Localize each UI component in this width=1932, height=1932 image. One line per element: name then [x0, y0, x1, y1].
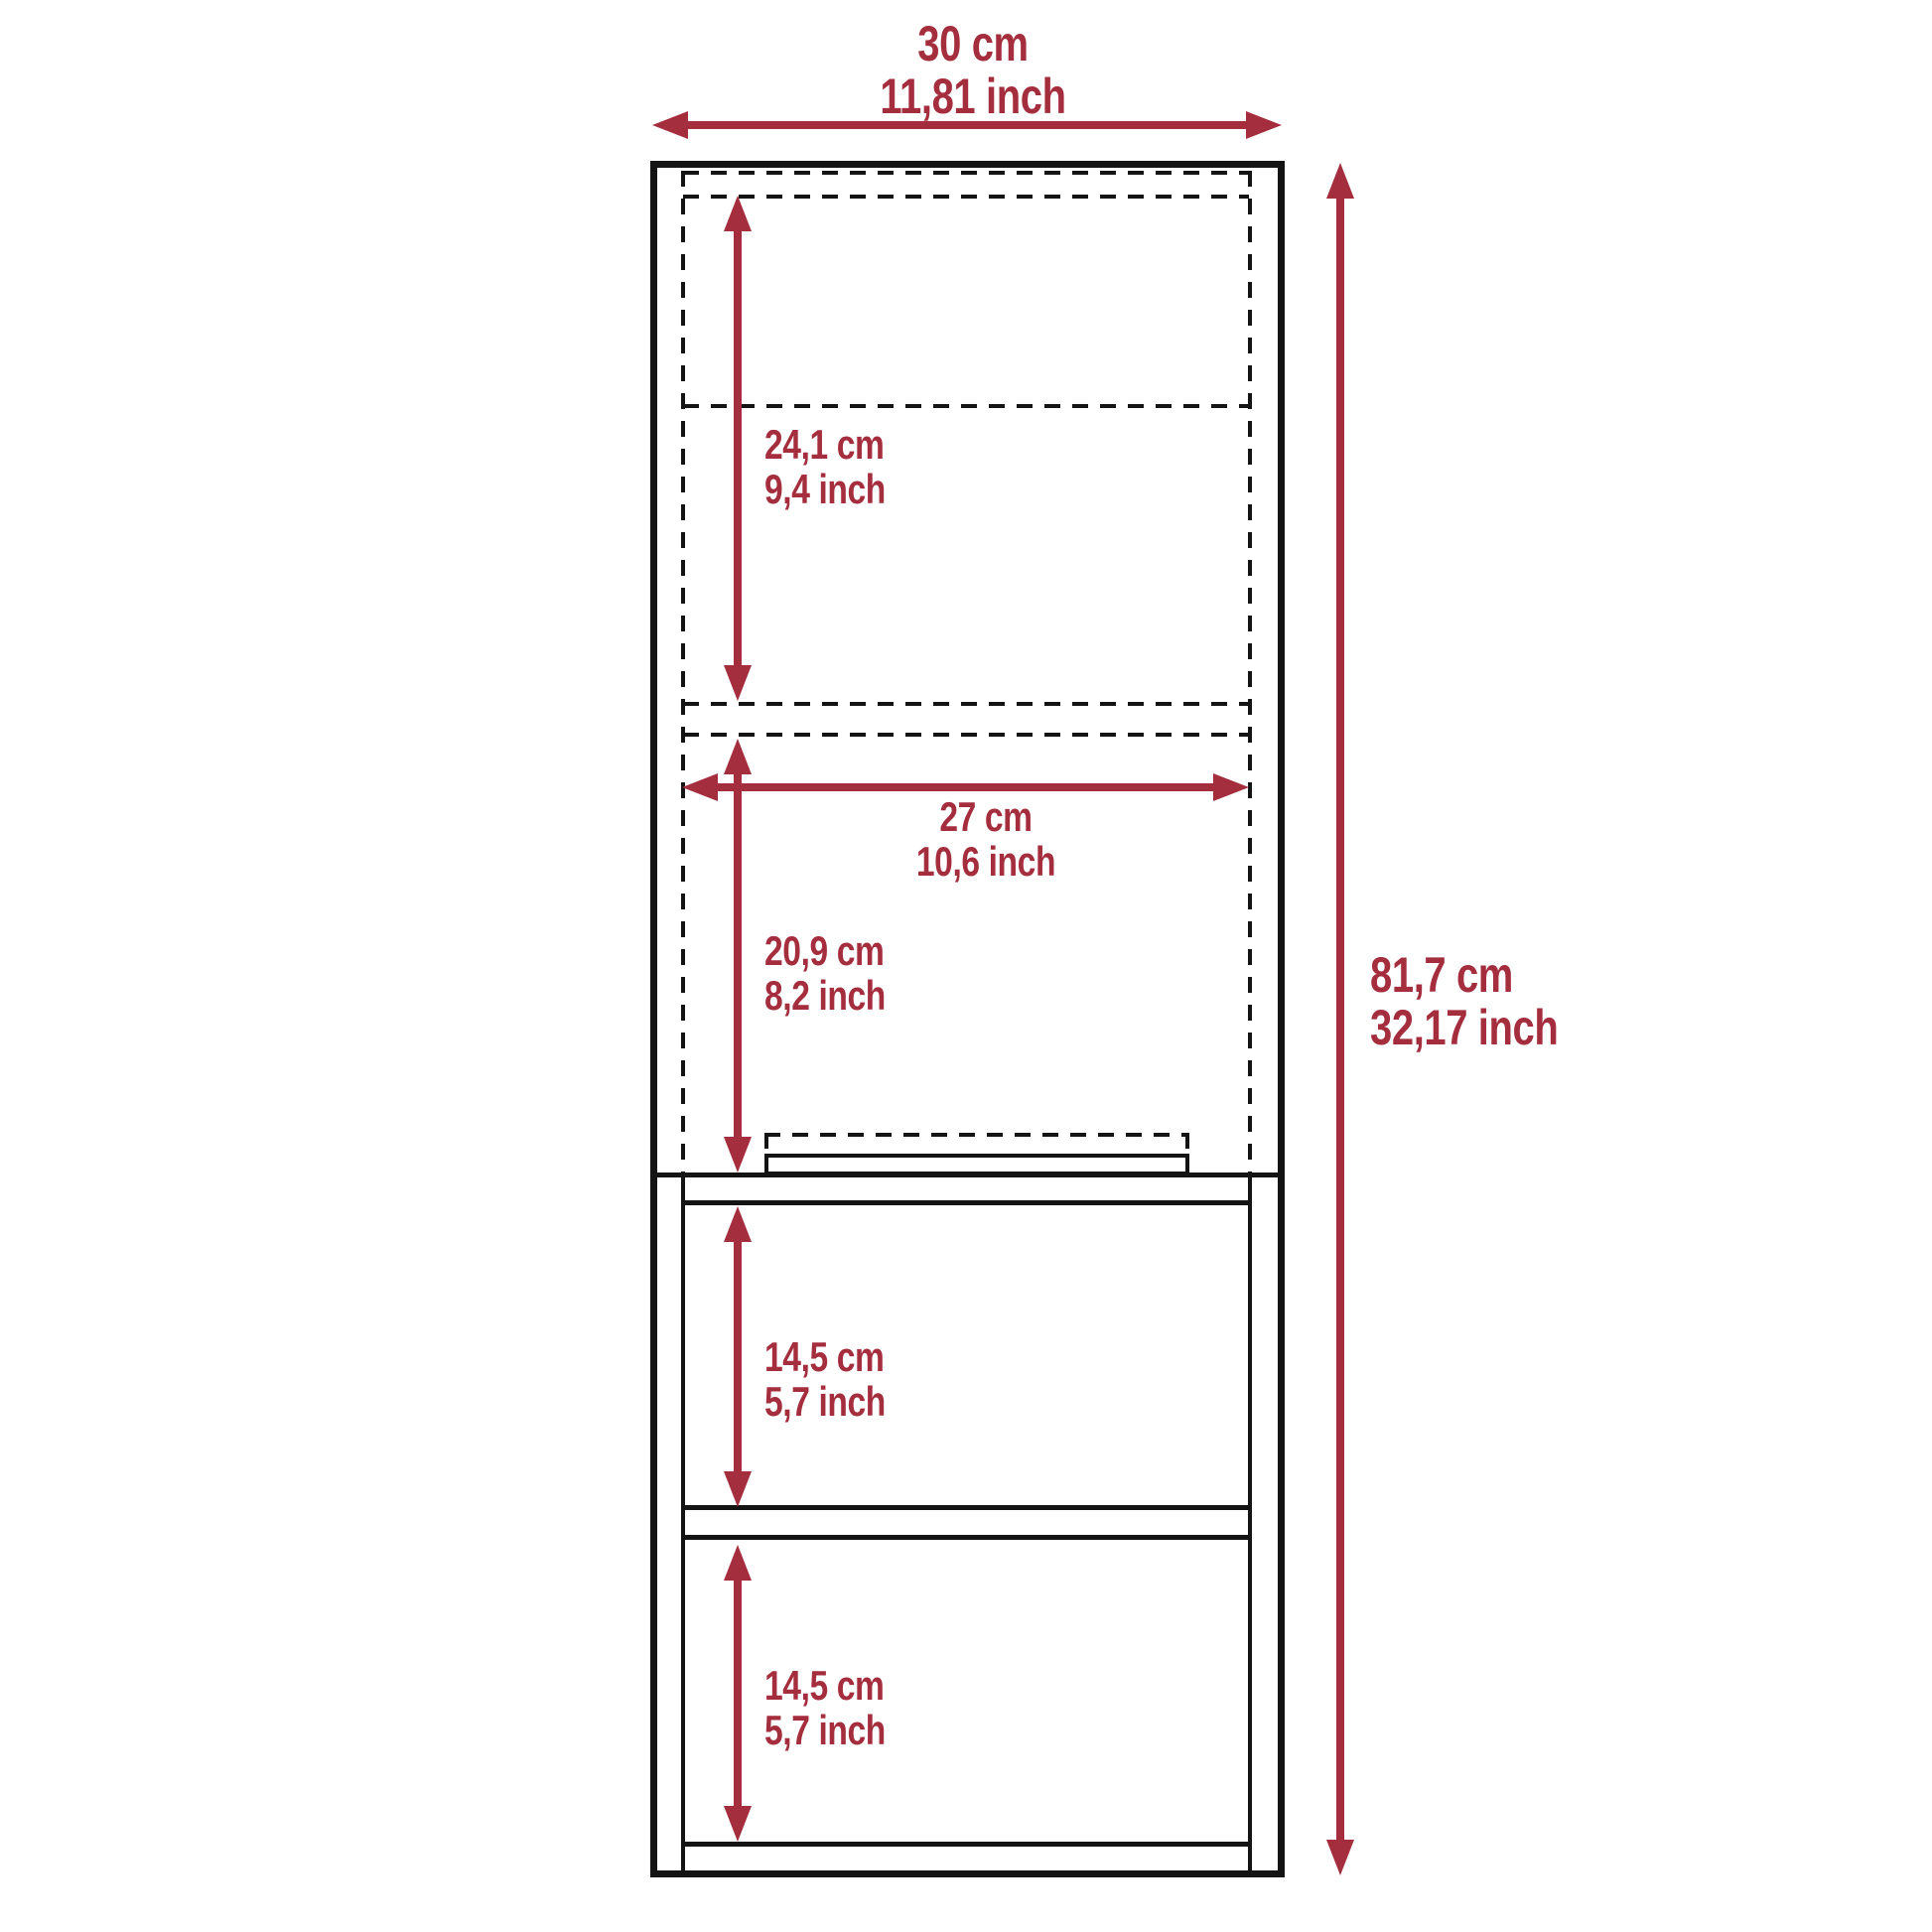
- overall-height-label: 81,7 cm 32,17 inch: [1370, 949, 1558, 1054]
- bottom-shelf-opening-arrow: [724, 1545, 752, 1842]
- middle-shelf-top-line: [683, 1505, 1248, 1510]
- door-shelf-dashed-line: [683, 404, 1249, 408]
- bottom-shelf-top-line: [683, 1842, 1248, 1847]
- handle-right-dashed-tick: [1185, 1133, 1189, 1154]
- middle-shelf-opening-label: 14,5 cm 5,7 inch: [764, 1334, 886, 1424]
- middle-shelf-opening-cm: 14,5 cm: [764, 1334, 886, 1379]
- overall-width-label: 30 cm 11,81 inch: [814, 18, 1132, 123]
- door-shelf-band-lower-dashed-line: [683, 733, 1249, 737]
- door-shelf-band-upper-dashed-line: [683, 702, 1249, 706]
- door-left-dashed-edge: [681, 171, 685, 1173]
- cabinet-right-outer-edge: [1278, 161, 1285, 1877]
- lower-door-section-inch: 8,2 inch: [764, 973, 886, 1018]
- middle-shelf-opening-arrow: [724, 1206, 752, 1507]
- inner-width-inch: 10,6 inch: [827, 839, 1145, 884]
- bottom-shelf-opening-cm: 14,5 cm: [764, 1663, 886, 1708]
- door-inner-top-dashed-line: [683, 195, 1249, 199]
- upper-compartment-cm: 24,1 cm: [764, 422, 886, 467]
- overall-height-arrow: [1326, 163, 1354, 1875]
- cabinet-left-outer-edge: [650, 161, 657, 1877]
- middle-shelf-opening-inch: 5,7 inch: [764, 1379, 886, 1424]
- lower-door-section-label: 20,9 cm 8,2 inch: [764, 928, 886, 1018]
- left-inner-panel-line: [681, 1174, 685, 1874]
- handle-left-dashed-tick: [764, 1133, 768, 1154]
- door-bottom-dashed-line: [764, 1133, 1189, 1137]
- middle-shelf-bottom-line: [683, 1535, 1248, 1540]
- upper-compartment-label: 24,1 cm 9,4 inch: [764, 422, 886, 511]
- divider-bottom-line: [683, 1200, 1248, 1205]
- cabinet-top-edge: [650, 161, 1285, 168]
- bottom-shelf-opening-inch: 5,7 inch: [764, 1708, 886, 1752]
- upper-compartment-inch: 9,4 inch: [764, 467, 886, 511]
- overall-height-inch: 32,17 inch: [1370, 1002, 1558, 1054]
- overall-height-cm: 81,7 cm: [1370, 949, 1558, 1002]
- lower-door-section-cm: 20,9 cm: [764, 928, 886, 973]
- overall-width-cm: 30 cm: [814, 18, 1132, 70]
- upper-compartment-arrow: [724, 196, 752, 701]
- inner-width-label: 27 cm 10,6 inch: [827, 794, 1145, 884]
- dimension-diagram: 30 cm 11,81 inch 81,7 cm 32,17 inch 24,1…: [0, 0, 1932, 1932]
- door-handle: [764, 1154, 1189, 1175]
- lower-door-section-arrow: [724, 739, 752, 1173]
- right-inner-panel-line: [1248, 1174, 1252, 1874]
- overall-width-inch: 11,81 inch: [814, 70, 1132, 123]
- door-top-dashed-line: [683, 171, 1249, 175]
- cabinet-bottom-edge: [650, 1870, 1285, 1877]
- bottom-shelf-opening-label: 14,5 cm 5,7 inch: [764, 1663, 886, 1752]
- inner-width-cm: 27 cm: [827, 794, 1145, 839]
- door-right-dashed-edge: [1248, 171, 1252, 1173]
